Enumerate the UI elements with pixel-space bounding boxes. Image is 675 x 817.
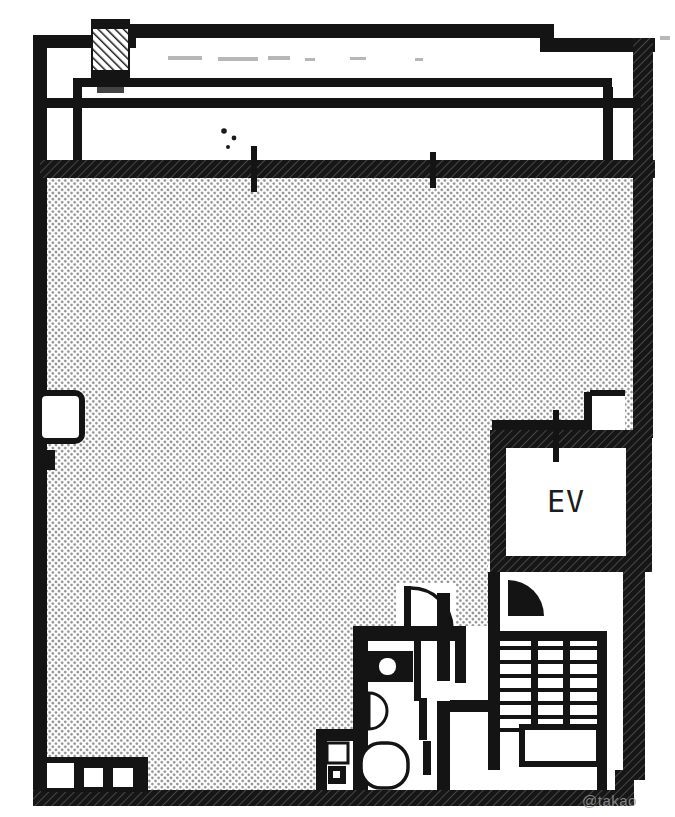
floor-plan-page: EV [0, 0, 675, 817]
niche-box-2 [84, 768, 103, 787]
washroom-wall-right-lower [437, 701, 450, 790]
main-room-top-wall [40, 160, 655, 178]
smudge [305, 58, 315, 61]
smudge [660, 36, 670, 40]
hall-wall-stub [450, 700, 490, 712]
smudge [350, 57, 366, 60]
washroom-door-leaf [404, 586, 411, 632]
stair-wall-top [500, 631, 600, 641]
niche-box-1 [47, 763, 74, 788]
elevator-door-tick [553, 410, 559, 462]
balcony-rail-inner [45, 98, 641, 108]
speck [232, 136, 237, 141]
hall-divider-wall [455, 626, 466, 683]
toilet [361, 743, 408, 788]
fixture-bar-2 [423, 741, 431, 775]
fixture-bar-1 [419, 698, 427, 740]
stair-landing [522, 727, 599, 764]
left-wall-niche-box [39, 393, 82, 441]
speck [221, 128, 227, 134]
wall-tick-a [251, 146, 257, 192]
shaft-cap-top [92, 20, 129, 29]
notch-top-edge [590, 390, 625, 396]
niche-box-3 [113, 768, 133, 787]
outer-wall-bottom [33, 790, 633, 806]
stair-stringer-1 [531, 641, 538, 734]
stair-wall-left [488, 572, 500, 770]
balcony-rail-left-return [73, 78, 82, 164]
smudge [415, 58, 423, 61]
floor-plan-drawing: EV [0, 0, 675, 817]
balcony-rail-right-return [603, 87, 613, 164]
washroom-inner-divider [414, 641, 421, 701]
duct-room-wall-left [316, 729, 327, 790]
left-wall-bump [46, 450, 55, 470]
elevator-label: EV [547, 484, 585, 519]
outer-wall-top [127, 24, 552, 38]
smudge [218, 57, 258, 61]
outer-wall-top-step [540, 24, 554, 52]
stair-treads [500, 648, 598, 730]
balcony-rail-outer [73, 78, 612, 87]
outer-wall-right-lower [623, 565, 645, 780]
bottom-left-niche [41, 757, 148, 792]
smudge [268, 56, 290, 60]
smudge [168, 56, 202, 60]
stair-stringer-2 [563, 641, 570, 734]
watermark-text: @takao [582, 792, 637, 809]
speck [226, 145, 230, 149]
wall-tick-b [430, 152, 436, 188]
duct-box [327, 743, 348, 763]
duct-unit-mark [333, 771, 340, 778]
vanity-basin [379, 658, 396, 675]
